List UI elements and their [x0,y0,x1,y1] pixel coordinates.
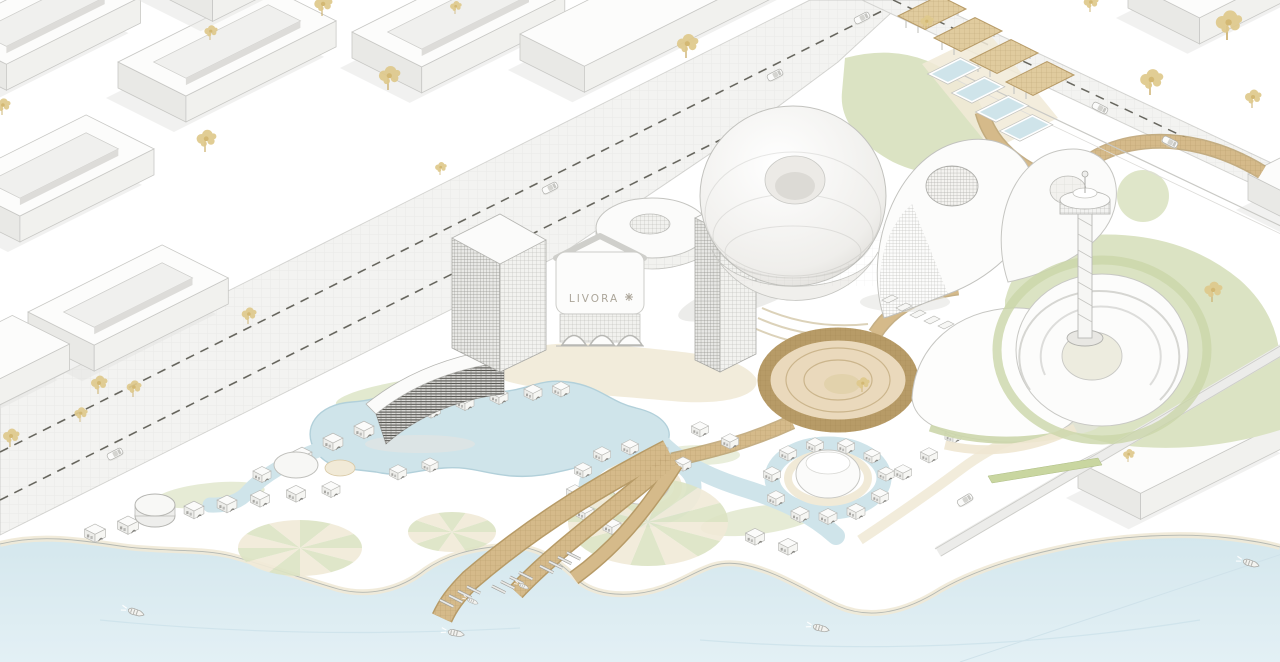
sunburst-lawn [408,512,496,552]
sign-text: LIVORA [569,293,619,305]
tower-finial [1082,171,1088,177]
torus-dome-building [700,106,886,300]
sign-logo-mark [625,293,633,301]
sunburst-lawn [238,520,362,576]
masterplan-svg: LIVORA [0,0,1280,662]
lagoon-islet [325,460,355,476]
arched-colonnade [562,336,642,346]
grid-facade-tower [452,214,546,372]
round-pavilion [274,452,318,478]
livora-gateway: LIVORA [556,236,644,346]
masterplan-rendering: LIVORA [0,0,1280,662]
amphitheater-plaza [764,334,912,426]
